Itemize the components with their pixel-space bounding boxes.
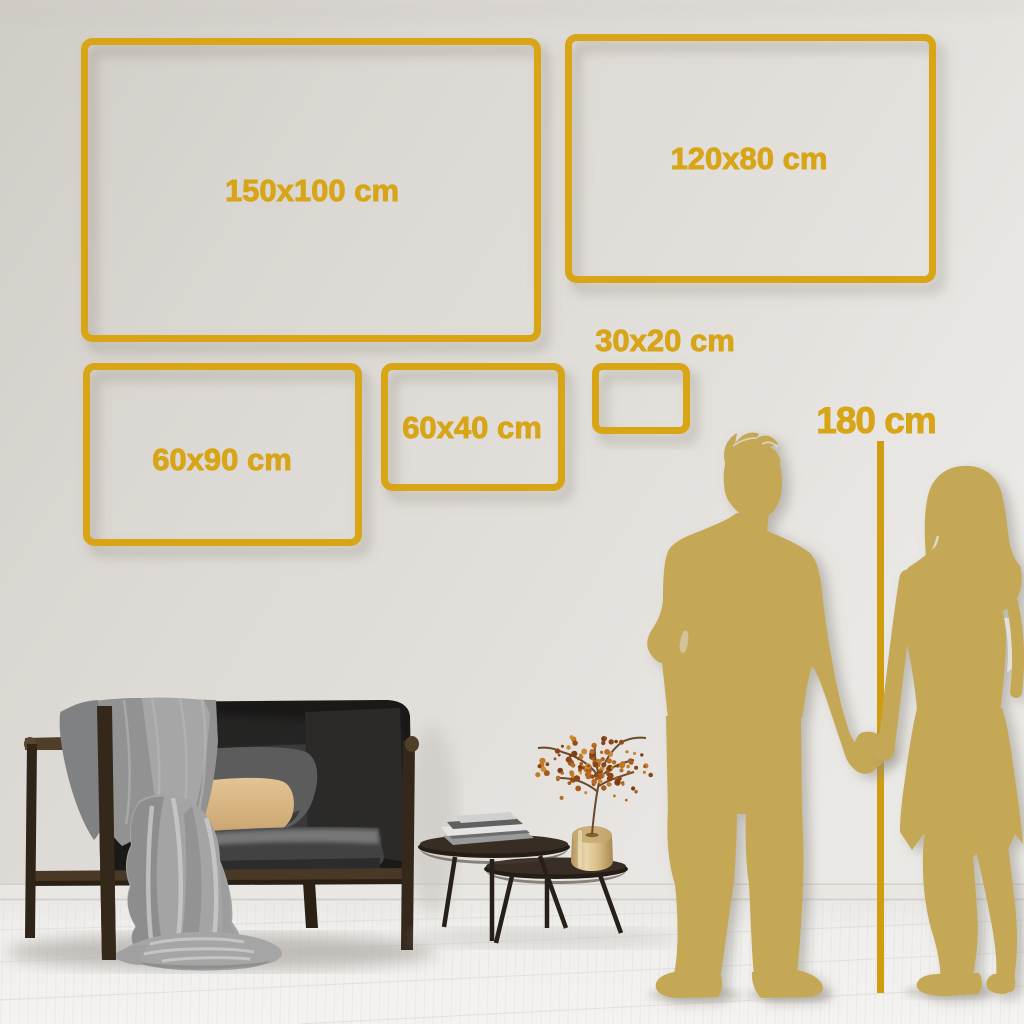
svg-text:120x80 cm: 120x80 cm: [671, 141, 828, 176]
svg-text:180 cm: 180 cm: [816, 400, 936, 441]
svg-text:60x40 cm: 60x40 cm: [402, 410, 542, 445]
svg-text:30x20 cm: 30x20 cm: [595, 323, 735, 358]
svg-text:60x90 cm: 60x90 cm: [152, 442, 292, 477]
svg-text:150x100 cm: 150x100 cm: [225, 173, 399, 208]
